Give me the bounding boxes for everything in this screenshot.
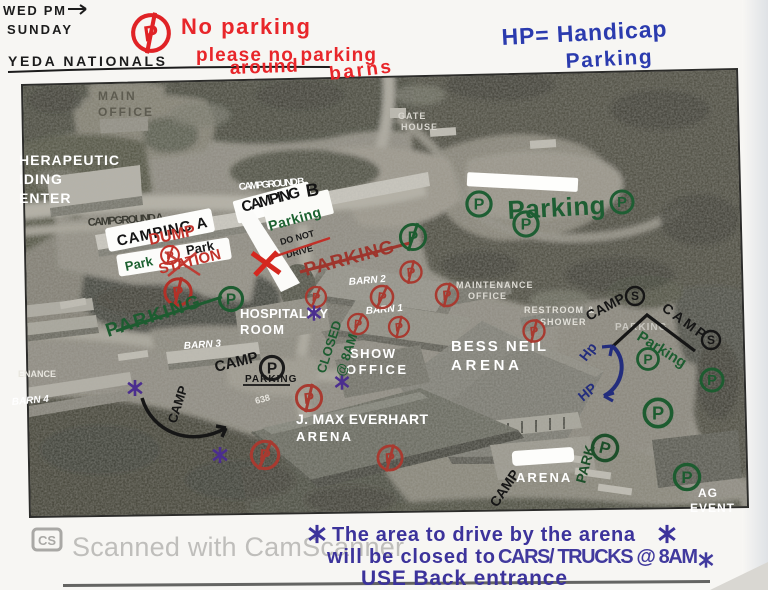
svg-text:ARENA: ARENA: [296, 429, 352, 444]
svg-text:IDING: IDING: [19, 171, 63, 187]
svg-text:EVENT: EVENT: [690, 501, 735, 515]
svg-text:MAINTENANCE: MAINTENANCE: [456, 280, 534, 290]
svg-text:CARS/ TRUCKS @ 8AM: CARS/ TRUCKS @ 8AM: [498, 546, 698, 568]
svg-text:OFFICE: OFFICE: [98, 105, 154, 119]
svg-text:HERAPEUTIC: HERAPEUTIC: [19, 152, 120, 168]
svg-text:No parking: No parking: [181, 14, 310, 39]
svg-text:MAIN: MAIN: [98, 89, 137, 103]
svg-text:USE Back entrance: USE Back entrance: [361, 567, 567, 590]
svg-text:OFFICE: OFFICE: [346, 362, 406, 377]
svg-text:J. MAX EVERHART: J. MAX EVERHART: [296, 411, 428, 427]
svg-text:ROOM: ROOM: [240, 322, 284, 337]
svg-text:CS: CS: [38, 533, 56, 548]
svg-text:ENTER: ENTER: [19, 190, 71, 206]
svg-text:GATE: GATE: [398, 111, 426, 121]
svg-text:ARENA: ARENA: [516, 470, 572, 485]
svg-text:PARKING: PARKING: [245, 374, 297, 385]
svg-text:AG: AG: [698, 486, 718, 500]
svg-text:SHOWER: SHOWER: [540, 317, 587, 327]
svg-text:OFFICE: OFFICE: [468, 291, 507, 301]
svg-text:around: around: [229, 56, 298, 79]
svg-text:S: S: [707, 333, 715, 347]
svg-text:SHOW: SHOW: [350, 346, 396, 361]
svg-text:The area to drive by the arena: The area to drive by the arena: [332, 524, 636, 546]
svg-text:ARENA: ARENA: [451, 357, 519, 374]
svg-text:WED PM: WED PM: [3, 3, 65, 18]
svg-text:HOUSE: HOUSE: [401, 122, 438, 132]
svg-text:will be closed to: will be closed to: [326, 546, 495, 568]
svg-text:S: S: [631, 289, 639, 303]
svg-text:ENANCE: ENANCE: [18, 369, 56, 379]
svg-text:Parking: Parking: [565, 46, 652, 73]
